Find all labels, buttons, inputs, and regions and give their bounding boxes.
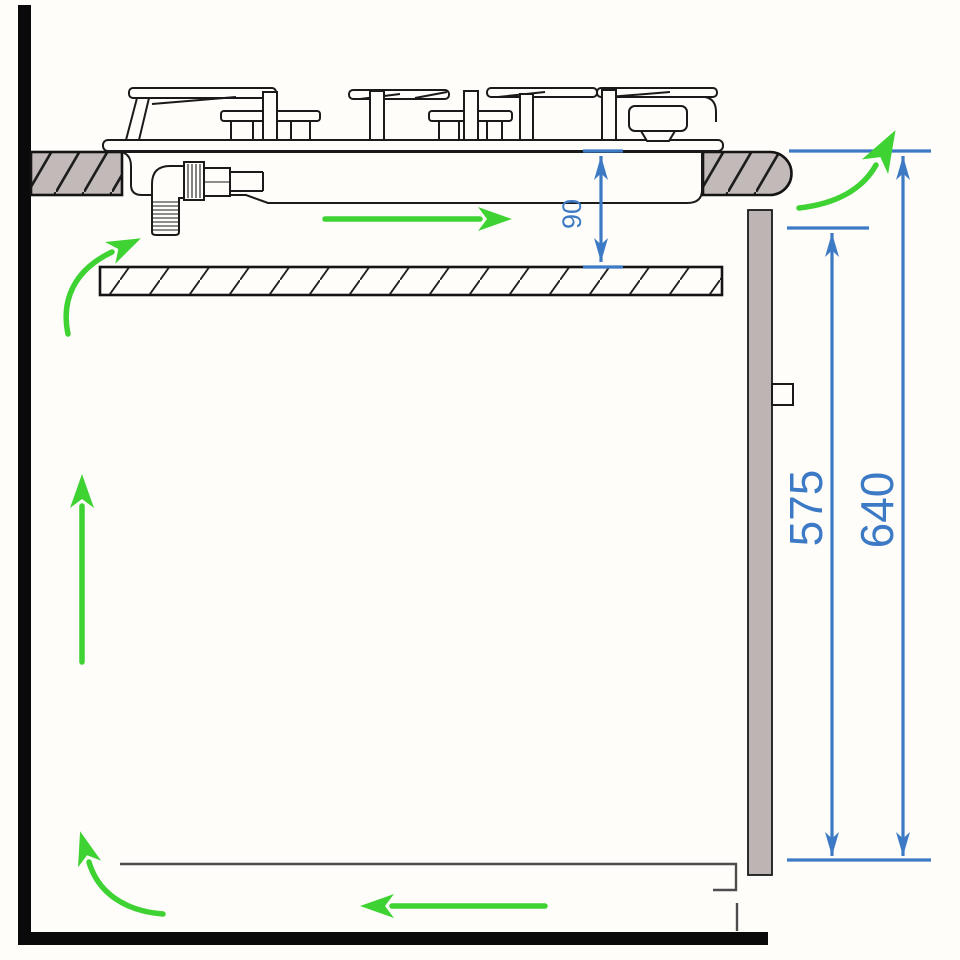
burners: [221, 106, 687, 141]
heat-shield-shelf: [100, 267, 722, 295]
wall: [18, 5, 31, 945]
installation-diagram: 90 640 575: [0, 0, 960, 960]
dimension-label-575: 575: [780, 470, 832, 547]
floor: [18, 932, 768, 945]
dimension-label-90: 90: [557, 199, 587, 229]
burner-3-cap: [629, 106, 687, 131]
hob-cross-section: [103, 88, 723, 235]
rear-panel-bracket: [772, 384, 793, 405]
worktop-rear-curved-arrow-icon: [799, 165, 876, 208]
base-cabinet-outline: [120, 864, 737, 931]
elbow-nut: [184, 162, 204, 200]
worktop-left: [31, 152, 122, 195]
installation-diagram-svg: 90 640 575: [0, 0, 960, 960]
dimension-label-640: 640: [851, 472, 903, 549]
rear-panel: [748, 210, 772, 875]
gas-inlet-elbow: [152, 162, 263, 235]
burner-3-pedestal: [641, 131, 675, 141]
bottom-left-curved-arrow-icon: [89, 862, 163, 914]
hob-top-plate: [103, 140, 723, 151]
worktop-right-bullnose: [703, 152, 791, 195]
